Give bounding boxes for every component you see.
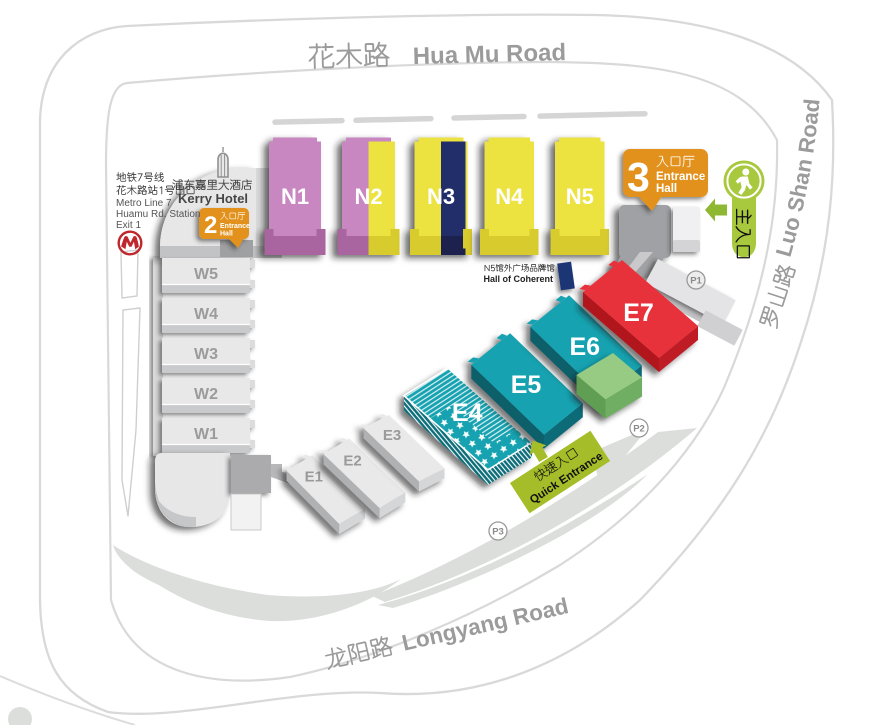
svg-text:E4: E4 xyxy=(452,399,483,427)
svg-text:Luo Shan Road: Luo Shan Road xyxy=(771,98,825,260)
svg-text:Hall of Coherent: Hall of Coherent xyxy=(483,274,553,284)
svg-text:Kerry Hotel: Kerry Hotel xyxy=(178,191,248,206)
svg-text:E3: E3 xyxy=(383,427,401,444)
svg-text:E1: E1 xyxy=(305,469,323,486)
svg-text:E7: E7 xyxy=(623,299,654,327)
svg-text:W2: W2 xyxy=(194,386,218,403)
svg-text:Entrance: Entrance xyxy=(656,171,705,183)
svg-text:E5: E5 xyxy=(511,371,542,399)
svg-text:3: 3 xyxy=(627,154,650,200)
svg-text:Exit 1: Exit 1 xyxy=(116,220,141,231)
svg-text:N1: N1 xyxy=(281,184,309,209)
svg-text:Hua Mu Road: Hua Mu Road xyxy=(412,39,566,70)
svg-text:Hall: Hall xyxy=(220,231,233,238)
svg-text:2: 2 xyxy=(204,212,217,239)
svg-text:E2: E2 xyxy=(343,452,361,469)
svg-text:W5: W5 xyxy=(194,266,218,283)
svg-text:P3: P3 xyxy=(492,527,504,538)
svg-text:N2: N2 xyxy=(354,184,382,209)
svg-text:Longyang Road: Longyang Road xyxy=(400,593,571,656)
svg-text:W3: W3 xyxy=(194,346,218,363)
svg-text:W1: W1 xyxy=(194,426,218,443)
svg-text:E6: E6 xyxy=(570,333,601,361)
svg-text:P1: P1 xyxy=(690,276,702,287)
svg-text:P2: P2 xyxy=(633,424,645,435)
svg-text:N4: N4 xyxy=(495,184,524,209)
svg-text:Hall: Hall xyxy=(656,183,677,195)
svg-text:N3: N3 xyxy=(427,184,455,209)
svg-text:Entrance: Entrance xyxy=(220,223,250,230)
svg-text:N5: N5 xyxy=(566,184,594,209)
svg-text:Metro Line 7: Metro Line 7 xyxy=(116,198,172,209)
svg-text:W4: W4 xyxy=(194,306,218,323)
svg-text:Huamu Rd. Station: Huamu Rd. Station xyxy=(116,209,201,220)
